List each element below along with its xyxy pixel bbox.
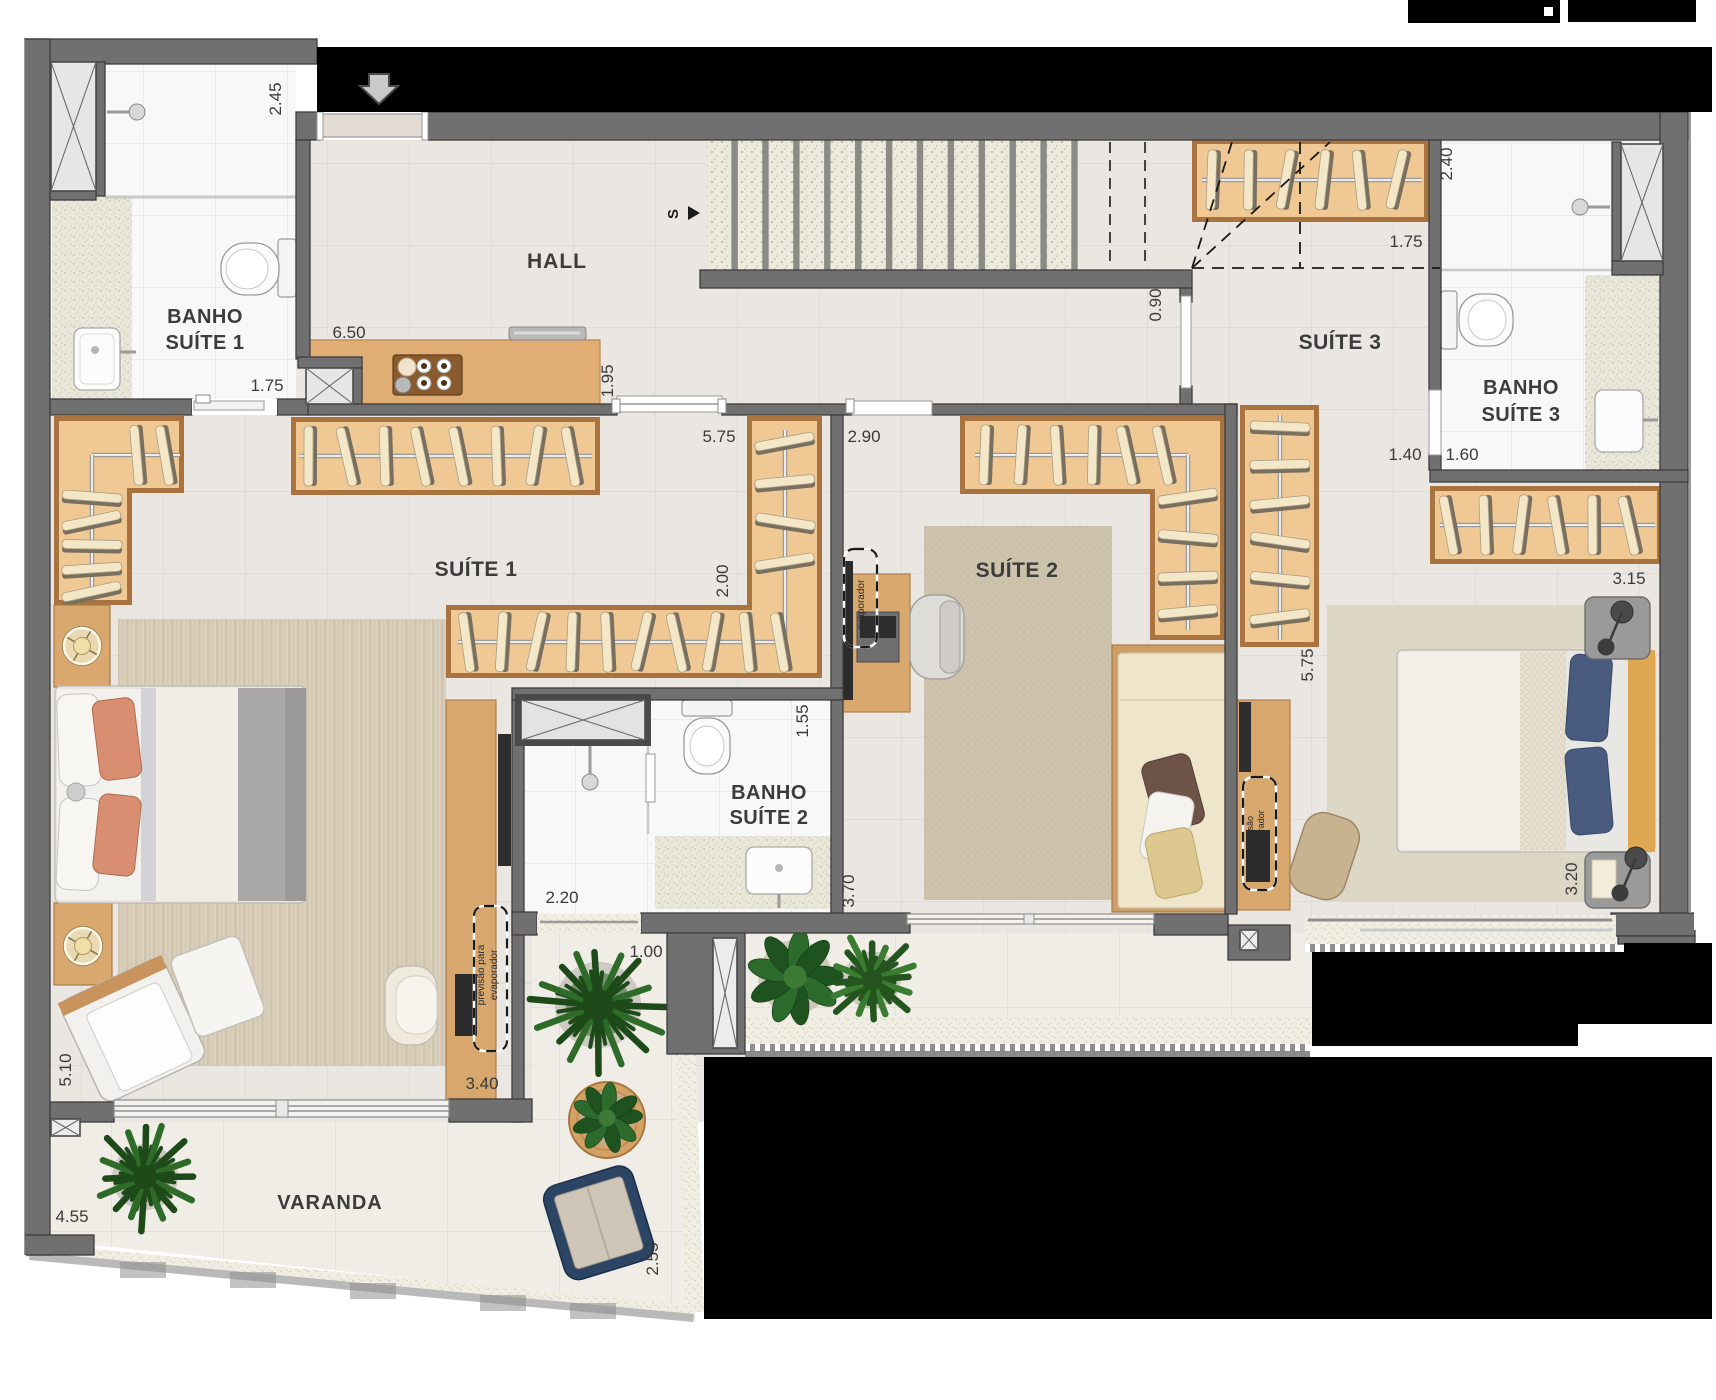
- svg-text:2.45: 2.45: [266, 82, 285, 115]
- svg-text:2.20: 2.20: [545, 888, 578, 907]
- svg-text:3.70: 3.70: [839, 874, 858, 907]
- svg-text:SUÍTE 1: SUÍTE 1: [165, 331, 244, 354]
- svg-text:1.75: 1.75: [250, 376, 283, 395]
- svg-text:1.55: 1.55: [793, 704, 812, 737]
- svg-text:evaporador: evaporador: [856, 579, 867, 630]
- svg-text:SUÍTE 3: SUÍTE 3: [1299, 331, 1382, 354]
- svg-text:2.00: 2.00: [713, 564, 732, 597]
- svg-text:evaporador: evaporador: [1256, 810, 1266, 856]
- svg-text:BANHO: BANHO: [167, 306, 243, 328]
- svg-text:SUÍTE 1: SUÍTE 1: [435, 558, 518, 581]
- svg-text:0.90: 0.90: [1146, 288, 1165, 321]
- svg-text:SUÍTE 2: SUÍTE 2: [976, 559, 1059, 582]
- svg-text:previsão para: previsão para: [476, 944, 487, 1005]
- svg-text:1.60: 1.60: [1445, 445, 1478, 464]
- svg-text:VARANDA: VARANDA: [277, 1192, 383, 1214]
- svg-text:3.20: 3.20: [1562, 862, 1581, 895]
- svg-text:SUÍTE 2: SUÍTE 2: [729, 806, 808, 829]
- svg-text:BANHO: BANHO: [731, 782, 807, 804]
- svg-text:2.55: 2.55: [643, 1242, 662, 1275]
- svg-text:4.55: 4.55: [55, 1207, 88, 1226]
- svg-text:evaporador: evaporador: [489, 949, 500, 1000]
- svg-text:3.15: 3.15: [1612, 569, 1645, 588]
- svg-text:1.95: 1.95: [598, 364, 617, 397]
- svg-text:S: S: [665, 209, 682, 219]
- svg-text:6.50: 6.50: [332, 323, 365, 342]
- svg-text:HALL: HALL: [527, 250, 587, 273]
- svg-text:5.75: 5.75: [702, 427, 735, 446]
- svg-text:1.75: 1.75: [1389, 232, 1422, 251]
- svg-text:2.40: 2.40: [1437, 147, 1456, 180]
- svg-text:5.10: 5.10: [56, 1053, 75, 1086]
- svg-text:2.90: 2.90: [847, 427, 880, 446]
- svg-text:SUÍTE 3: SUÍTE 3: [1481, 403, 1560, 426]
- svg-text:previsão: previsão: [1245, 816, 1255, 850]
- svg-text:1.40: 1.40: [1388, 445, 1421, 464]
- svg-text:1.00: 1.00: [629, 942, 662, 961]
- svg-text:3.40: 3.40: [465, 1074, 498, 1093]
- svg-text:BANHO: BANHO: [1483, 377, 1559, 399]
- svg-text:5.75: 5.75: [1298, 648, 1317, 681]
